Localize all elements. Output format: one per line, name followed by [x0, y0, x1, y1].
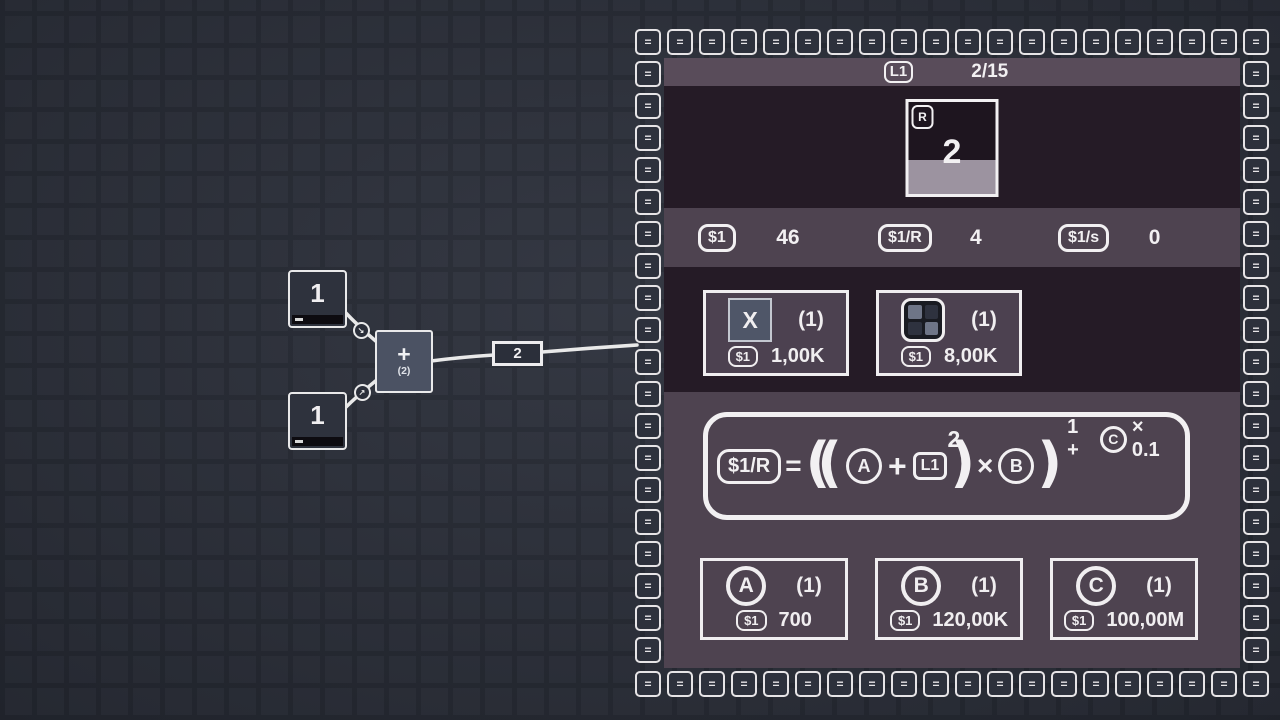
open-parens: ((: [806, 436, 829, 496]
border-tile: =: [763, 29, 789, 55]
border-tile: =: [635, 445, 661, 471]
border-tile: =: [1243, 381, 1269, 407]
border-tile: =: [635, 125, 661, 151]
currency-badge: $1: [890, 610, 920, 631]
buy-count: (1): [798, 308, 824, 332]
equals-sign: =: [785, 450, 801, 482]
border-tile: =: [635, 253, 661, 279]
level-term: L1 2: [913, 452, 948, 480]
border-tile: =: [731, 671, 757, 697]
border-tile: =: [1115, 671, 1141, 697]
money-per-second-value: 0: [1109, 226, 1238, 250]
wire-output-right: [542, 345, 637, 352]
border-tile: =: [1211, 671, 1237, 697]
border-tile: =: [987, 29, 1013, 55]
buy-count: (1): [971, 574, 997, 598]
border-tile: =: [1051, 29, 1077, 55]
border-tile: =: [635, 573, 661, 599]
operand-count: (2): [398, 365, 411, 377]
border-tile: =: [1243, 605, 1269, 631]
border-tile: =: [1083, 29, 1109, 55]
panel-header: L1 2/15: [664, 58, 1240, 86]
target-card-value: 2: [909, 133, 996, 172]
wire-value: 2: [513, 345, 521, 362]
border-tile: =: [635, 381, 661, 407]
border-tile: =: [763, 671, 789, 697]
price: 8,00K: [944, 345, 997, 368]
border-tile: =: [635, 671, 661, 697]
border-tile: =: [1243, 509, 1269, 535]
buy-count: (1): [796, 574, 822, 598]
border-tile: =: [635, 605, 661, 631]
money-value: 46: [736, 226, 878, 250]
border-tile: =: [699, 29, 725, 55]
money-per-reset-badge: $1/R: [878, 224, 932, 252]
stat-money-per-reset: $1/R 4: [878, 224, 1058, 252]
machine-panel: ==================== ===================…: [632, 26, 1272, 700]
variable-b-icon: B: [998, 448, 1034, 484]
adder-node[interactable]: + (2): [375, 330, 433, 393]
formula-result-badge: $1/R: [717, 449, 781, 484]
border-tile: =: [635, 221, 661, 247]
border-tile: =: [635, 157, 661, 183]
border-tile: =: [1243, 317, 1269, 343]
stat-money: $1 46: [698, 224, 878, 252]
border-tile: =: [1179, 671, 1205, 697]
border-tile: =: [795, 29, 821, 55]
border-tile: =: [923, 671, 949, 697]
border-tile: =: [1019, 671, 1045, 697]
border-tile: =: [635, 93, 661, 119]
border-tile: =: [1115, 29, 1141, 55]
border-col-right: ===================: [1240, 58, 1272, 668]
border-tile: =: [1243, 93, 1269, 119]
panel-interior: L1 2/15 R 2 $1 46 $1/R 4: [664, 58, 1240, 668]
plus-symbol: +: [397, 346, 410, 362]
border-tile: =: [667, 29, 693, 55]
x-tile-icon: X: [728, 298, 772, 342]
target-card[interactable]: R 2: [906, 99, 999, 197]
border-tile: =: [1179, 29, 1205, 55]
close-paren-outer: ): [1037, 436, 1062, 496]
border-tile: =: [987, 671, 1013, 697]
wire-value-label: 2: [492, 341, 543, 366]
grid-tile-icon: [901, 298, 945, 342]
price: 700: [779, 609, 812, 632]
border-tile: =: [1243, 253, 1269, 279]
price: 1,00K: [771, 345, 824, 368]
border-tile: =: [827, 671, 853, 697]
border-tile: =: [1243, 189, 1269, 215]
currency-badge: $1: [1064, 610, 1094, 631]
border-tile: =: [891, 29, 917, 55]
border-tile: =: [635, 61, 661, 87]
border-tile: =: [827, 29, 853, 55]
variable-c-icon: C: [1100, 426, 1127, 453]
border-tile: =: [1243, 671, 1269, 697]
arrow-up-right-icon: ↗: [359, 388, 366, 397]
border-tile: =: [1243, 349, 1269, 375]
border-tile: =: [1243, 285, 1269, 311]
minus-icon: [295, 440, 303, 443]
border-tile: =: [859, 29, 885, 55]
border-row-bottom: ====================: [632, 668, 1272, 700]
border-tile: =: [699, 671, 725, 697]
currency-badge: $1: [728, 346, 758, 367]
plus-sign: +: [888, 448, 907, 485]
formula-section: $1/R = (( A + L1 2 ) × B ) 1 + C: [664, 392, 1240, 668]
source-node-2[interactable]: 1: [288, 392, 347, 450]
level-exponent: 2: [948, 426, 961, 453]
node-bottom-strip: [292, 315, 343, 324]
variable-b-icon: B: [901, 566, 941, 606]
border-tile: =: [1243, 29, 1269, 55]
variable-a-icon: A: [846, 448, 882, 484]
border-tile: =: [1243, 413, 1269, 439]
border-tile: =: [1083, 671, 1109, 697]
money-per-second-badge: $1/s: [1058, 224, 1109, 252]
buy-count: (1): [971, 308, 997, 332]
node-bottom-strip: [292, 437, 343, 446]
input-port-top[interactable]: ↘: [353, 322, 370, 339]
border-tile: =: [635, 413, 661, 439]
buy-grid-node-button[interactable]: (1) $1 8,00K: [876, 290, 1022, 376]
border-tile: =: [1051, 671, 1077, 697]
buy-x-node-button[interactable]: X (1) $1 1,00K: [703, 290, 849, 376]
price: 100,00M: [1106, 609, 1184, 632]
money-badge: $1: [698, 224, 736, 252]
border-tile: =: [1243, 221, 1269, 247]
border-tile: =: [635, 509, 661, 535]
shop-section: X (1) $1 1,00K: [664, 267, 1240, 392]
buy-variable-c-button[interactable]: C (1) $1 100,00M: [1050, 558, 1198, 640]
border-tile: =: [795, 671, 821, 697]
formula-exponent: 1 + C × 0.1: [1067, 416, 1176, 462]
border-tile: =: [667, 671, 693, 697]
border-col-left: ===================: [632, 58, 664, 668]
stat-money-per-second: $1/s 0: [1058, 224, 1238, 252]
border-tile: =: [1147, 29, 1173, 55]
grid-cell: [908, 322, 922, 336]
border-tile: =: [1243, 445, 1269, 471]
arrow-down-right-icon: ↘: [358, 326, 365, 335]
border-tile: =: [891, 671, 917, 697]
border-tile: =: [635, 29, 661, 55]
input-port-bottom[interactable]: ↗: [354, 384, 371, 401]
stats-bar: $1 46 $1/R 4 $1/s 0: [664, 208, 1240, 267]
buy-count: (1): [1146, 574, 1172, 598]
border-tile: =: [1147, 671, 1173, 697]
exponent-suffix: × 0.1: [1132, 416, 1176, 462]
variable-a-icon: A: [726, 566, 766, 606]
border-tile: =: [955, 671, 981, 697]
border-tile: =: [955, 29, 981, 55]
level-box-icon: L1: [913, 452, 948, 480]
border-tile: =: [1211, 29, 1237, 55]
level-progress: 2/15: [971, 61, 1008, 83]
currency-badge: $1: [736, 610, 766, 631]
grid-cell: [908, 305, 922, 319]
grid-cell: [925, 305, 939, 319]
border-tile: =: [859, 671, 885, 697]
border-tile: =: [1243, 541, 1269, 567]
buy-variable-b-button[interactable]: B (1) $1 120,00K: [875, 558, 1023, 640]
border-tile: =: [1243, 637, 1269, 663]
upgrade-row: A (1) $1 700 B (1): [700, 558, 1240, 640]
variable-c-icon: C: [1076, 566, 1116, 606]
border-tile: =: [635, 317, 661, 343]
border-row-top: ====================: [632, 26, 1272, 58]
border-tile: =: [1243, 477, 1269, 503]
source-node-1[interactable]: 1: [288, 270, 347, 328]
currency-badge: $1: [901, 346, 931, 367]
minus-icon: [295, 318, 303, 321]
target-card-section: R 2: [664, 86, 1240, 208]
grid-cell: [925, 322, 939, 336]
price: 120,00K: [932, 609, 1008, 632]
border-tile: =: [635, 637, 661, 663]
exponent-prefix: 1 +: [1067, 416, 1095, 462]
wire-output-left: [431, 355, 494, 361]
border-tile: =: [635, 285, 661, 311]
border-tile: =: [635, 541, 661, 567]
border-tile: =: [635, 477, 661, 503]
x-tile-label: X: [742, 307, 757, 334]
border-tile: =: [923, 29, 949, 55]
times-sign: ×: [977, 450, 993, 482]
buy-variable-a-button[interactable]: A (1) $1 700: [700, 558, 848, 640]
border-tile: =: [1019, 29, 1045, 55]
border-tile: =: [731, 29, 757, 55]
border-tile: =: [635, 349, 661, 375]
border-tile: =: [635, 189, 661, 215]
border-tile: =: [1243, 61, 1269, 87]
money-per-reset-value: 4: [932, 226, 1058, 250]
border-tile: =: [1243, 157, 1269, 183]
formula-display: $1/R = (( A + L1 2 ) × B ) 1 + C: [703, 412, 1190, 520]
reset-badge: R: [912, 105, 934, 129]
level-badge: L1: [884, 61, 914, 83]
border-tile: =: [1243, 573, 1269, 599]
border-tile: =: [1243, 125, 1269, 151]
